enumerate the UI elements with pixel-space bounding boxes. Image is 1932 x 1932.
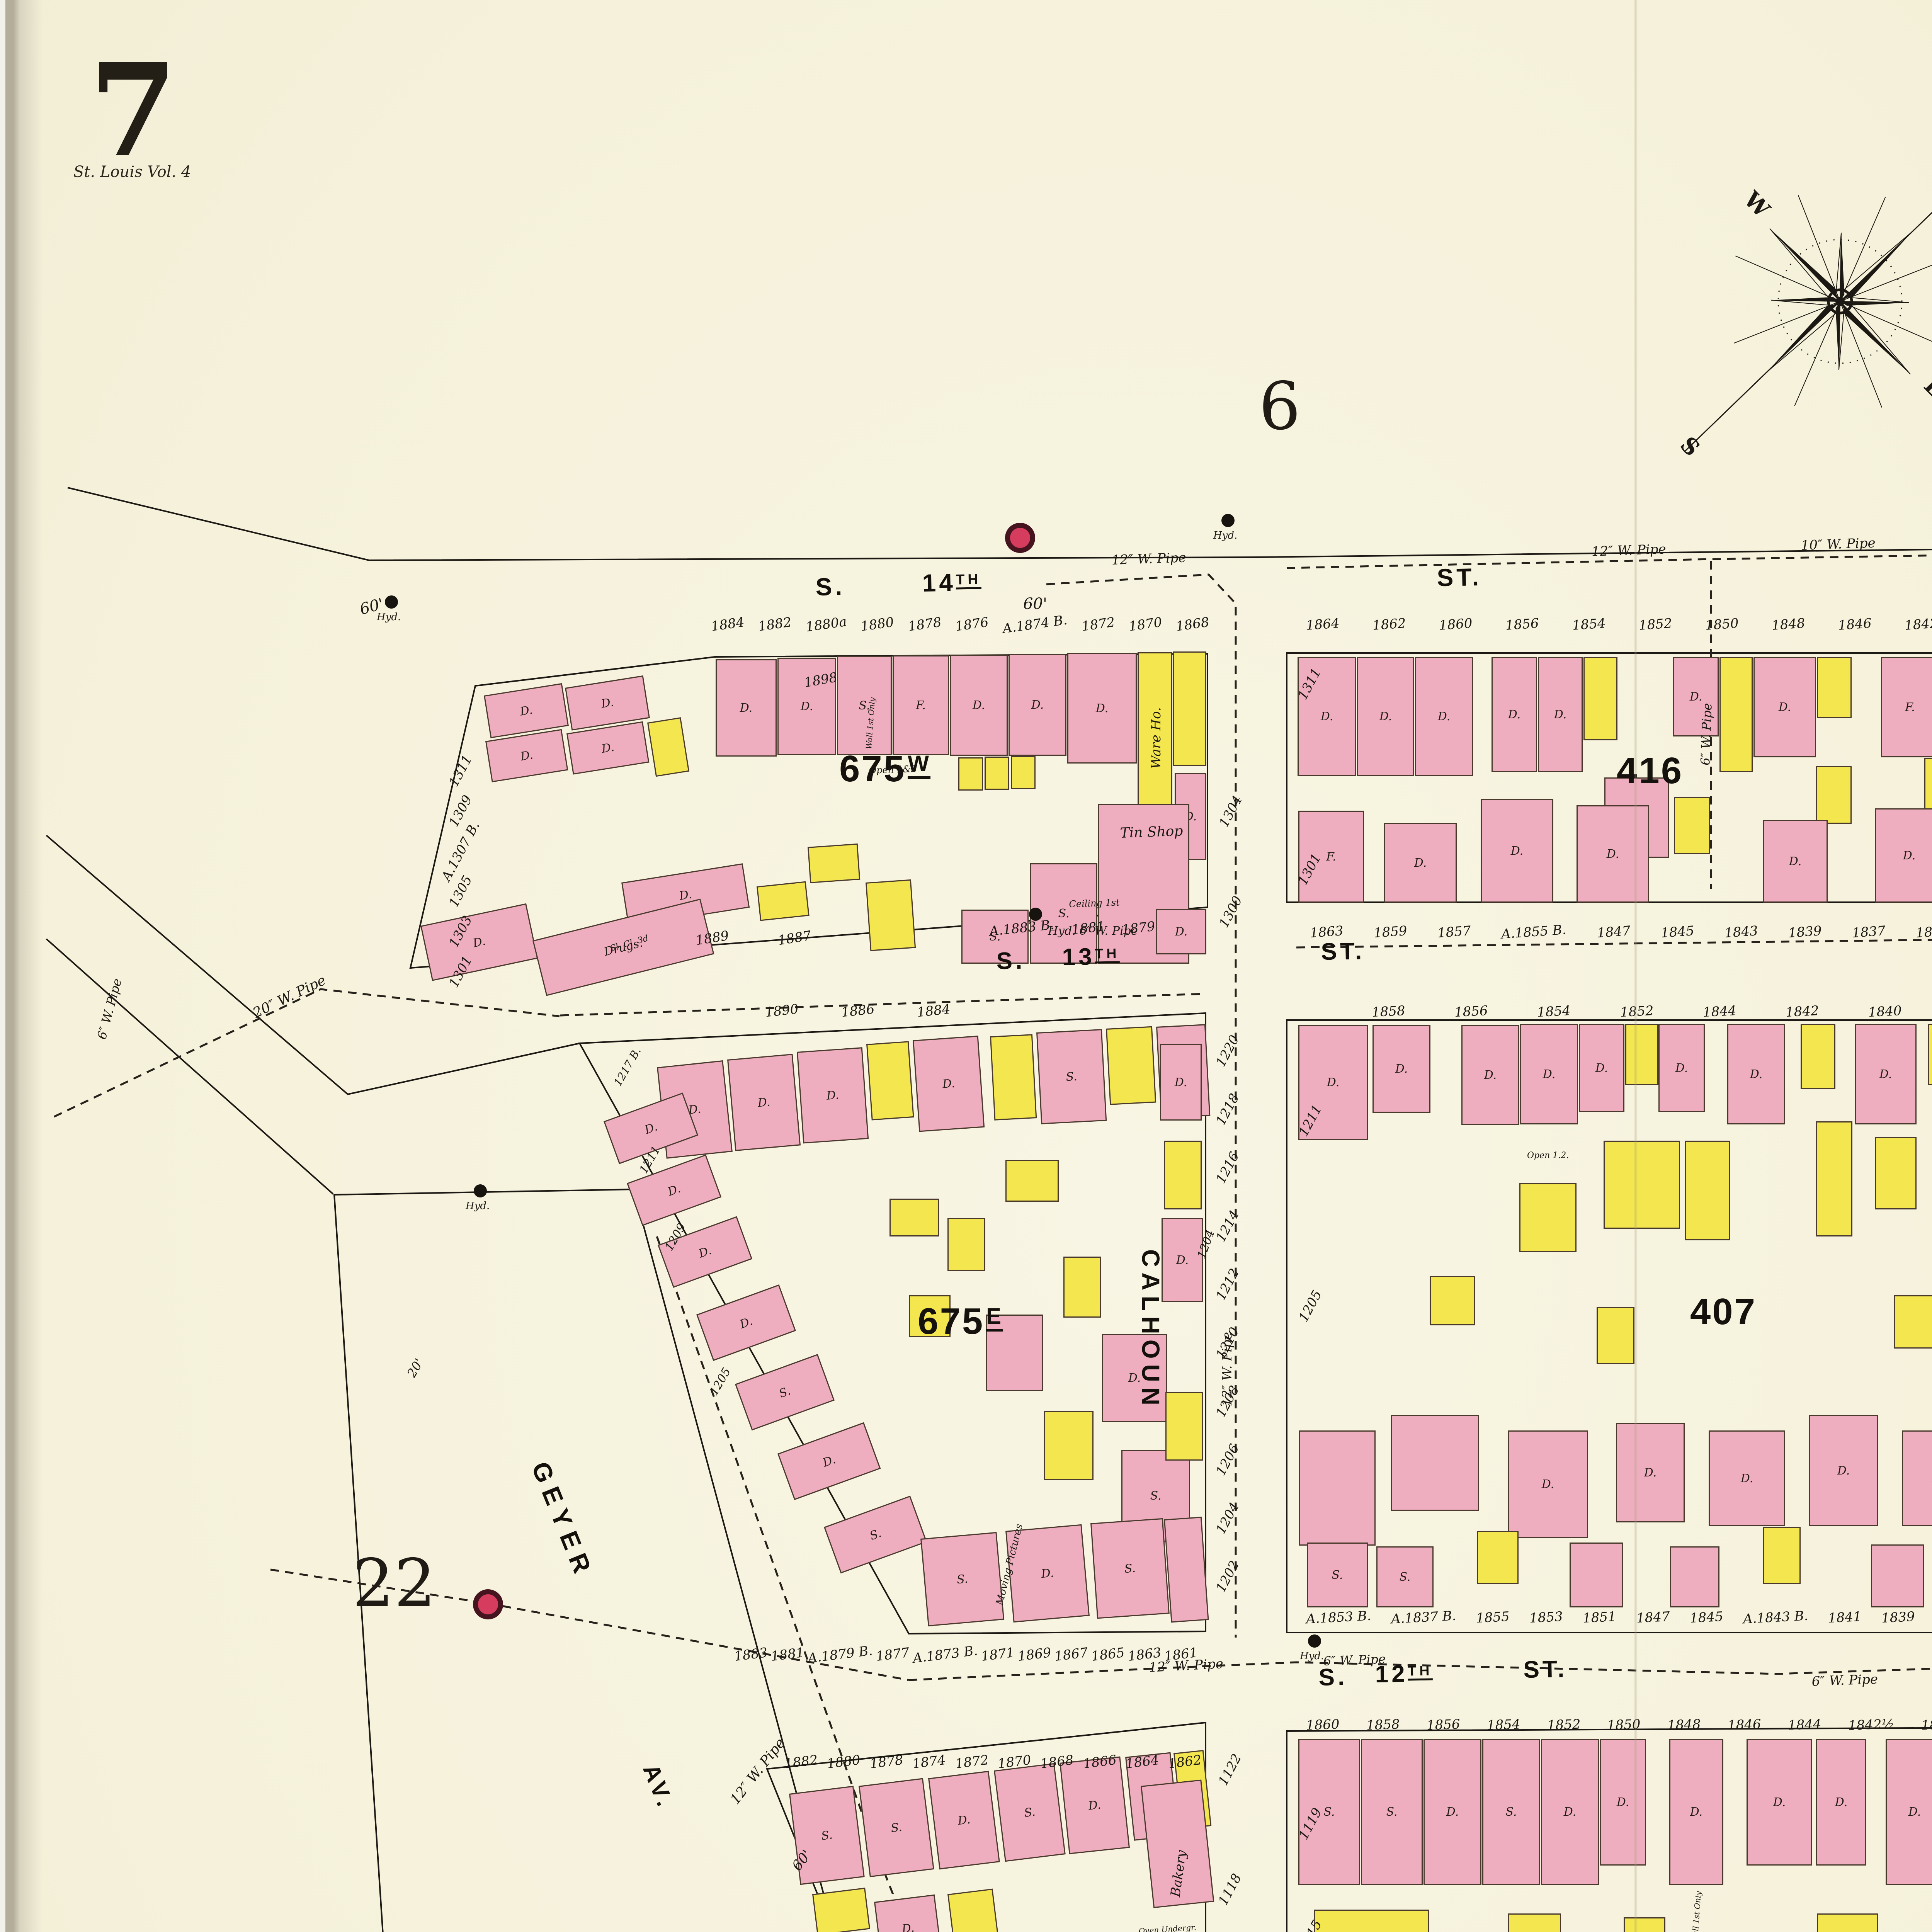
building: S. [859,1778,934,1878]
building-use-label: D. [1484,1068,1497,1082]
map-annotation: 12″ W. Pipe [1111,550,1186,568]
house-number: 1835 [1915,923,1932,941]
building: S. [1307,1543,1368,1607]
map-annotation: Ceiling 1st [1069,897,1120,910]
house-number: 1889 [694,928,730,948]
building: D. [1492,657,1537,772]
building-use-label: D. [901,1921,915,1932]
building-use-label: D. [1644,1466,1657,1480]
sanborn-map-page: NSWE 5040302010050100150D.D.D.D.D.D.S.F.… [0,0,1932,1932]
building: D. [696,1284,796,1361]
building: D. [1384,823,1457,903]
building-use-label: D. [1395,1062,1408,1076]
block-number-label: 407 [1690,1291,1757,1333]
house-number: 1858 [1371,1003,1406,1020]
house-number: 1880 [826,1752,861,1772]
building [1817,657,1852,718]
house-number-strip: 188418821880a188018781876A.1874 B.187218… [711,617,1209,632]
building [1670,1546,1719,1607]
house-number: 1846 [1727,1717,1761,1733]
building [985,757,1009,790]
building-use-label: S. [777,1384,792,1401]
house-number-strip: A.1853 B.A.1837 B.18551853185118471845A.… [1306,1610,1932,1625]
building: D. [1875,808,1932,903]
building-use-label: D. [1595,1061,1608,1075]
building: D. [1709,1430,1785,1526]
house-number: 1854 [1486,1717,1520,1733]
building-use-label: S. [890,1820,903,1835]
building [1597,1307,1634,1364]
building: D. [1009,654,1066,756]
house-number: 1218 [1213,1091,1242,1128]
building-use-label: D. [973,699,985,712]
house-number: 1854 [1537,1003,1571,1020]
hydrant-dot [1029,908,1042,921]
house-number-strip: 11221118 [1213,1762,1247,1897]
building [1005,1160,1059,1202]
house-number: 1878 [869,1752,904,1772]
building-use-label: D. [1607,847,1619,861]
house-number-strip: 1220121812161214121212101208120612041202 [1211,1043,1245,1584]
house-number: 1867 [1053,1645,1088,1664]
map-annotation: Ware Ho. [1148,707,1164,769]
house-number: 1847 [1596,923,1631,941]
hydrant-red-icon [473,1589,503,1619]
building: D. [913,1036,985,1132]
adjacent-sheet-number: 6 [1259,368,1301,445]
building-use-label: D. [1617,1796,1629,1809]
hydrant-label: Hyd. [1300,1650,1324,1662]
sheet-title-block: 7 St. Louis Vol. 4 [89,46,191,181]
hydrant-red-icon [1005,523,1035,553]
hydrant-label: Hyd. [1213,530,1237,541]
house-number: 1841 [1828,1609,1862,1626]
house-number: 1846 [1838,616,1872,633]
house-number-strip: 1864186218601856185418521850184818461842… [1306,617,1932,632]
building: D. [716,659,777,757]
building-use-label: S. [1023,1805,1036,1820]
building-use-label: D. [1554,708,1567,721]
house-number: A.1879 B. [807,1643,873,1666]
map-annotation: Oven Undergr. [1138,1923,1197,1932]
building [1477,1531,1519,1584]
building: D. [950,655,1008,756]
house-number-strip: 185818561854185218441842184018361834 [1372,1004,1932,1019]
house-number: A.1855 B. [1501,922,1567,942]
building [1871,1544,1924,1607]
building-use-label: D. [1837,1464,1850,1478]
building-use-label: D. [1414,856,1427,870]
adjacent-sheet-number: 22 [352,1545,436,1622]
house-number: 1220 [1213,1032,1242,1069]
house-number: 1871 [980,1645,1015,1664]
house-number-strip: 1860185818561854185218501848184618441842… [1306,1717,1932,1733]
building [1625,1024,1658,1085]
hydrant-dot [474,1184,487,1197]
building: F. [893,655,949,755]
house-number: 1860 [1439,616,1473,633]
building [1583,657,1617,740]
house-number: 1880a [804,614,847,635]
house-number: 1842 [1921,1717,1932,1733]
building: D. [1579,1024,1624,1112]
building-use-label: D. [1675,1061,1688,1075]
building [1106,1026,1156,1105]
building: D. [1658,1024,1705,1112]
house-number: 1840 [1868,1003,1902,1020]
house-number: 1870 [1128,614,1163,634]
building-use-label: D. [678,888,693,903]
house-number: 1874 [912,1752,947,1772]
building: D. [1415,657,1473,776]
house-number-strip: 13111309A.1307 B.130513031301 [428,763,493,980]
building-use-label: S. [1399,1570,1410,1584]
house-number-strip: 12111205 [1294,1113,1327,1314]
house-number: 1842½ [1848,1716,1895,1733]
building [1604,1141,1680,1229]
building: D. [727,1054,801,1151]
house-number: 1848 [1667,1717,1701,1733]
building-use-label: D. [519,748,534,764]
building: D. [928,1771,1000,1869]
hydrant-label: Hyd. [466,1200,490,1212]
building: D. [1481,799,1553,903]
building: D. [1727,1024,1785,1124]
building-use-label: S. [1150,1489,1161,1503]
building [1011,756,1036,789]
building [947,1218,985,1271]
building [947,1889,999,1932]
map-annotation: Hyd. 6″ W. Pipe [1048,924,1138,938]
street-name-label: ST. [1437,563,1482,592]
map-annotation: Open 1.2. [1527,1151,1569,1160]
house-number: 1206 [1213,1441,1242,1478]
building-use-label: D. [600,695,615,711]
house-number: A.1874 B. [1002,612,1068,636]
generated-map-layer: 5040302010050100150D.D.D.D.D.D.S.F.D.D.D… [0,0,1932,1932]
house-number: 1844 [1787,1717,1821,1733]
building: D. [1763,820,1828,903]
street-ordinal-suffix: TH [1095,945,1120,963]
building-use-label: D. [1789,855,1802,868]
map-annotation: Tin Shop [1120,823,1183,841]
building-use-label: D. [1750,1068,1763,1081]
building-use-label: D. [738,1314,755,1331]
house-number: 1853 [1529,1609,1563,1626]
building: D. [874,1895,942,1932]
house-number: A.1837 B. [1391,1608,1456,1627]
map-annotation: 6″ W. Pipe [1698,703,1715,766]
building-use-label: S. [868,1526,883,1543]
house-number: 1845 [1660,923,1694,941]
street-name-label: S. [815,572,845,601]
map-annotation: 60' [1023,595,1047,613]
house-number: 1884 [710,614,745,634]
building: D. [1577,805,1649,903]
building-use-label: D. [1041,1566,1054,1581]
house-number: 1856 [1505,616,1539,633]
building: D. [1541,1739,1599,1885]
building [1801,1024,1835,1089]
building [1063,1257,1101,1318]
house-number: 1850 [1704,616,1739,633]
building-use-label: D. [666,1182,682,1199]
building [1164,1141,1202,1209]
house-number: 1881 [770,1645,805,1664]
building-use-label: D. [1543,1068,1556,1081]
house-number: 1844 [1702,1003,1737,1020]
building: S. [824,1496,927,1574]
building: D. [1809,1415,1878,1526]
building-use-label: F. [916,699,926,712]
building: D. [1886,1739,1932,1885]
house-number: 1865 [1090,1645,1125,1664]
house-number: 1860 [1306,1717,1340,1733]
street-name-label: AV. [638,1760,680,1813]
building: D. [1372,1025,1430,1113]
house-number: 1202 [1213,1558,1242,1595]
block-number: 416 [1617,750,1683,791]
building-use-label: D. [957,1813,971,1828]
building [1685,1141,1730,1240]
building: D. [777,1422,881,1500]
building-use-label: D. [826,1088,840,1102]
building-use-label: D. [1773,1796,1786,1809]
map-annotation: 12″ W. Pipe [1591,541,1666,560]
building-use-label: D. [740,701,753,715]
building [958,757,983,791]
building: D. [1067,653,1137,764]
map-annotation: Open 1&2 [869,764,917,776]
building-use-label: D. [697,1243,713,1260]
house-number: A.1853 B. [1306,1608,1371,1627]
street-name-label: ST. [1321,937,1365,966]
block-number-suffix: E [986,1304,1003,1332]
house-number-strip: 11191115111311051103 [1294,1816,1327,1932]
house-number-strip: 13041300 [1214,804,1248,920]
street-name-label: S. [996,947,1026,975]
building: D. [1747,1739,1812,1866]
house-number: 1884 [917,1002,951,1020]
building: S. [994,1763,1066,1862]
map-annotation: 20″ W. Pipe [250,972,328,1021]
building-use-label: S. [820,1828,833,1843]
building [990,1034,1037,1120]
house-number: 1851 [1582,1609,1617,1626]
building: D. [1156,909,1206,954]
building: S. [1090,1518,1170,1619]
building: D. [1520,1024,1578,1124]
building-use-label: S. [1058,907,1069,920]
building [1314,1910,1429,1932]
house-number: 1887 [777,928,813,948]
building: D. [1855,1024,1917,1124]
map-annotation: 12″ W. Pipe [1219,1332,1235,1406]
paper-crease [1634,0,1638,1932]
house-number: 1872 [1080,614,1116,634]
house-number-strip: 18831881A.1879 B.1877A.1873 B.1871186918… [734,1647,1198,1662]
volume-label: St. Louis Vol. 4 [73,163,191,181]
building-use-label: S. [1066,1070,1078,1083]
house-number: 1856 [1454,1003,1488,1020]
building [1928,1024,1932,1085]
building-use-label: S. [956,1572,969,1586]
building-use-label: D. [1835,1796,1848,1809]
house-number: 1848 [1771,616,1806,633]
house-number: 1868 [1039,1752,1075,1772]
house-number: 1864 [1125,1752,1160,1772]
building-use-label: D. [1508,708,1521,721]
building-use-label: S. [1505,1805,1517,1819]
building-use-label: D. [1175,1076,1187,1089]
house-number: 1842 [1904,616,1932,633]
hydrant-dot [1308,1634,1321,1648]
building-use-label: D. [1446,1805,1459,1819]
building: F. [1881,657,1932,757]
house-number: 1216 [1213,1150,1242,1186]
building: D. [1508,1430,1588,1538]
building-use-label: D. [1088,1798,1102,1813]
block-number: 675 [918,1301,984,1342]
building [1719,657,1753,772]
map-annotation: Hall 1st Only [1690,1891,1703,1932]
house-number-strip: 13111301 [1293,676,1327,877]
building: S. [920,1532,1004,1626]
map-annotation: 1205 [707,1366,733,1398]
building [866,879,916,951]
house-number-strip: 186318591857A.1855 B.1847184518431839183… [1310,924,1932,940]
map-annotation: 10″ W. Pipe [1801,535,1876,553]
house-number: 1886 [840,1002,875,1020]
building-use-label: D. [643,1120,659,1137]
building-use-label: D. [1879,1068,1892,1081]
house-number: 1877 [875,1645,910,1664]
building-use-label: S. [1332,1568,1343,1582]
building [1674,797,1710,854]
building [1519,1183,1577,1252]
house-number: 1856 [1426,1717,1460,1733]
building [1165,1392,1203,1461]
building: S. [1376,1546,1434,1607]
map-annotation: 1217 B. [611,1045,643,1088]
house-number: 1843 [1724,923,1759,941]
building [1299,1430,1376,1546]
building [1816,1121,1852,1236]
building: D. [1423,1739,1481,1885]
house-number: 1304 [1216,793,1245,830]
building: D. [1162,1218,1203,1302]
building: D. [1538,657,1583,772]
street-name-label: ST. [1523,1655,1568,1684]
house-number: 1204 [1213,1500,1242,1536]
building-use-label: D. [1438,710,1451,723]
map-annotation: 6″ W. Pipe [94,977,124,1041]
sheet-number: 7 [89,46,191,174]
map-annotation: 20' [404,1356,427,1380]
building-use-label: D. [1542,1478,1554,1491]
building [1164,1517,1209,1622]
house-number: 1882 [784,1752,819,1772]
house-number: 1858 [1366,1717,1400,1733]
house-number: 1866 [1082,1752,1117,1772]
house-number: 1868 [1175,614,1210,634]
house-number: 1205 [1296,1287,1325,1324]
building: D. [1600,1739,1646,1866]
building-use-label: F. [1326,850,1336,864]
building [1875,1137,1917,1209]
building-use-label: D. [1176,1253,1189,1267]
house-number: 1872 [954,1752,989,1772]
building [1624,1917,1665,1932]
building [866,1041,914,1120]
house-number: 1115 [1296,1917,1325,1932]
house-number: 1862 [1167,1752,1202,1772]
house-number: 1862 [1372,616,1406,633]
building: D. [1461,1025,1519,1125]
house-number: 1864 [1306,616,1340,633]
building-use-label: D. [1564,1805,1577,1819]
building-use-label: D. [519,703,534,718]
building: D. [1160,1044,1202,1121]
building-use-label: D. [757,1095,770,1110]
building-use-label: D. [1741,1472,1753,1485]
house-number: 1880 [860,614,895,634]
house-number: 1854 [1571,616,1606,633]
building [1430,1276,1475,1325]
house-number: 1303 [446,913,475,950]
house-number: 1876 [954,614,990,634]
street-name-label: 14TH [922,568,981,597]
house-number: 1890 [764,1002,799,1020]
house-number: 1852 [1547,1717,1581,1733]
building-use-label: S. [1386,1805,1397,1819]
building [1508,1913,1561,1932]
house-number: 1118 [1215,1871,1245,1908]
house-number: 1212 [1213,1266,1242,1303]
building: D. [1816,1739,1866,1866]
house-number: 1847 [1636,1609,1670,1626]
house-number: 1883 [733,1645,769,1664]
house-number: 1300 [1216,893,1245,930]
building [1817,1913,1878,1932]
house-number: 1869 [1017,1645,1052,1664]
building [1924,758,1932,810]
building-use-label: F. [1905,701,1915,714]
building-use-label: D. [600,740,615,756]
building-use-label: D. [1690,1805,1703,1819]
building [1763,1527,1801,1584]
house-number: 1301 [446,953,475,990]
building [1816,766,1852,824]
building-use-label: D. [1903,849,1916,862]
house-number: 1122 [1215,1751,1245,1788]
building [812,1888,870,1932]
building: D. [1669,1739,1723,1885]
block-number-label: 416 [1617,750,1683,792]
building: D. [1616,1423,1685,1522]
building [889,1199,939,1236]
building-use-label: D. [1096,702,1109,715]
building-use-label: D. [1031,698,1044,712]
building: D. [1060,1756,1130,1854]
house-number: 1311 [446,752,475,789]
hydrant-label: Hyd. [377,611,401,623]
block-number: 407 [1690,1291,1757,1332]
building-use-label: S. [1124,1561,1136,1576]
building [1570,1543,1623,1607]
street-name-label: GEYER [526,1458,600,1583]
house-number: 1842 [1785,1003,1820,1020]
